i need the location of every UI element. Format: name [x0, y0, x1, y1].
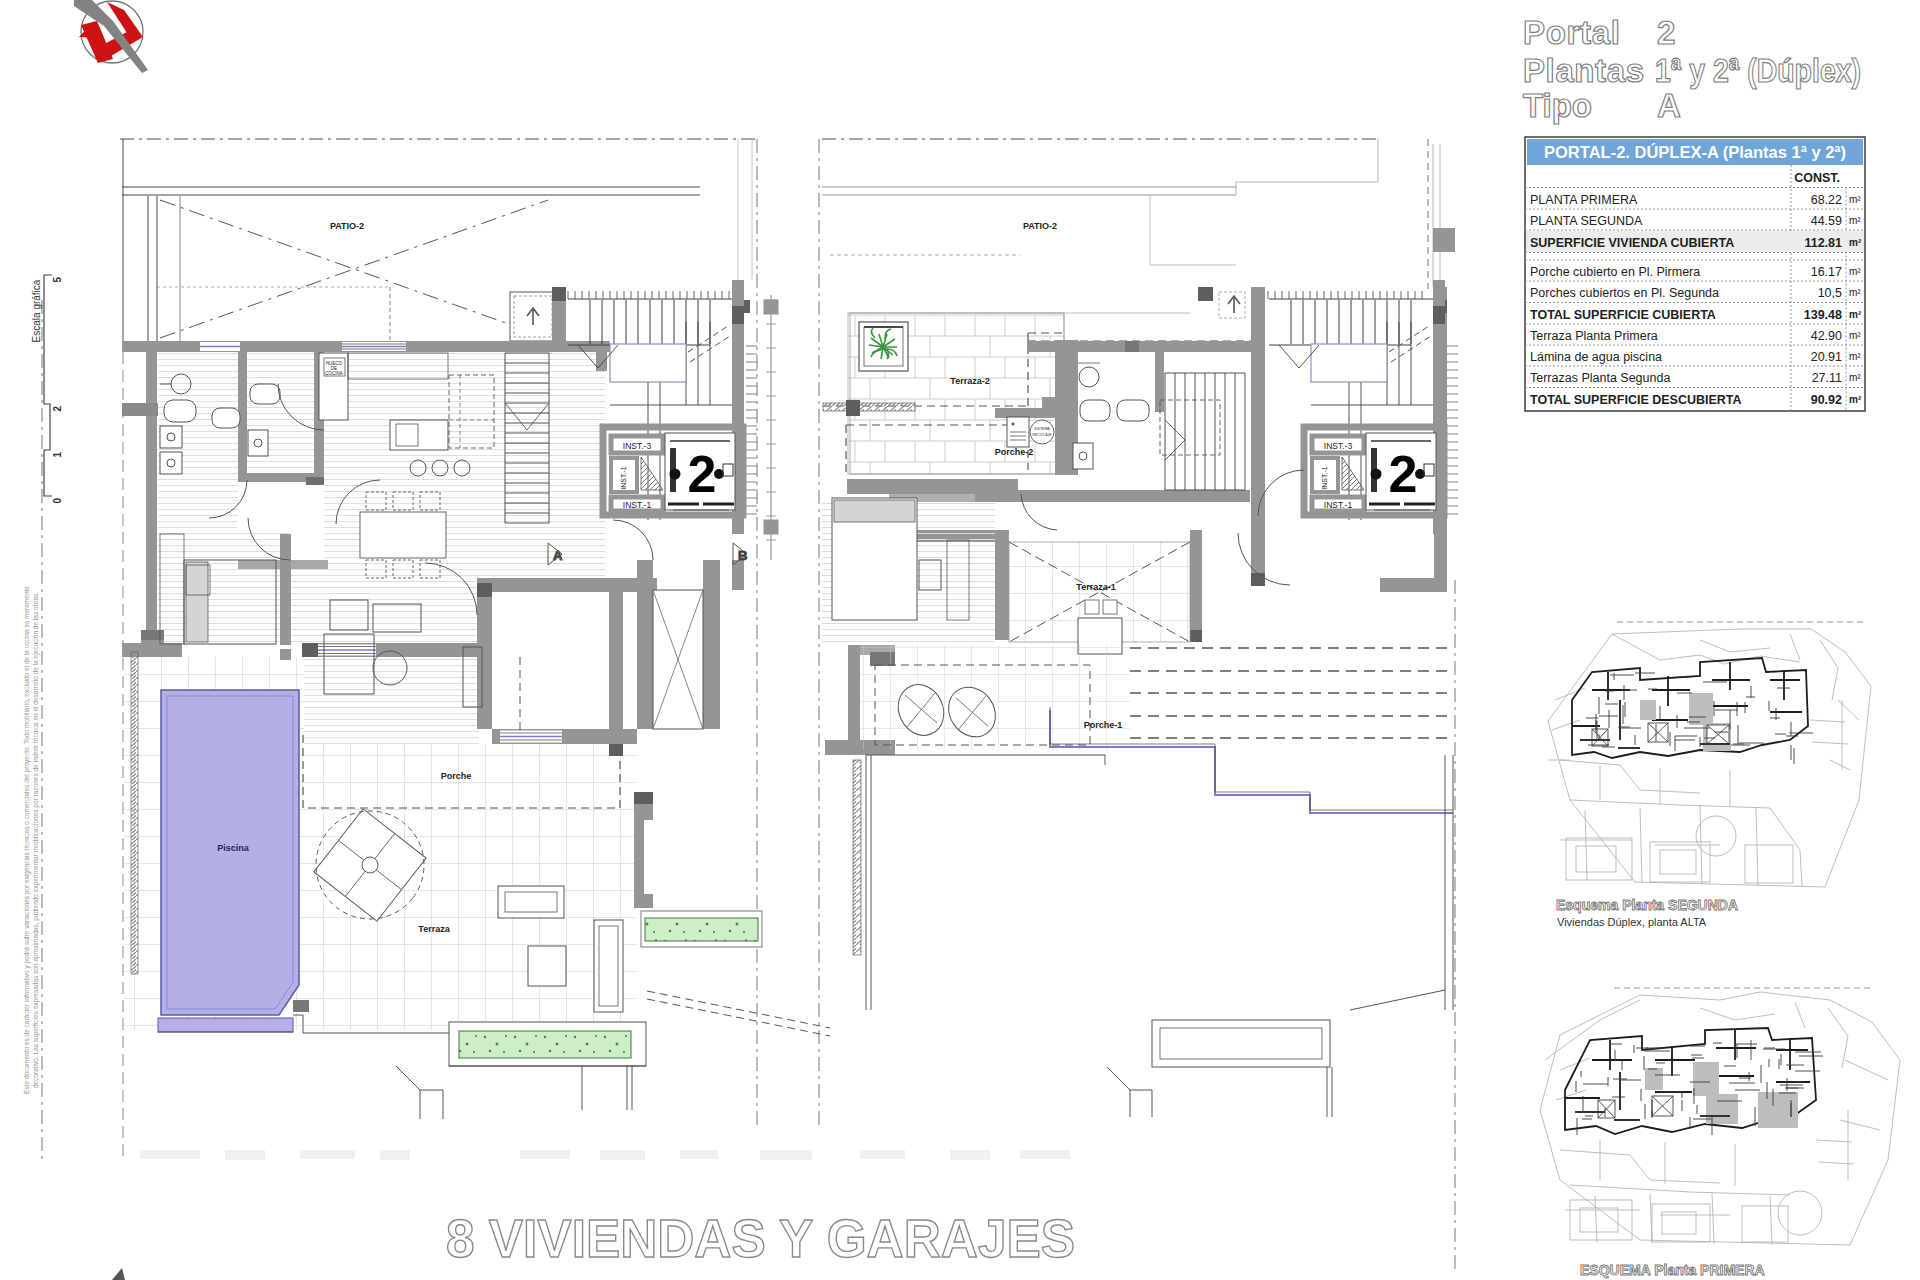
svg-text:m²: m² [1849, 372, 1861, 383]
svg-text:PLANTA SEGUNDA: PLANTA SEGUNDA [1530, 214, 1643, 228]
svg-text:90.92: 90.92 [1811, 393, 1842, 407]
svg-text:PATIO-2: PATIO-2 [1023, 221, 1057, 231]
svg-text:PLANTA PRIMERA: PLANTA PRIMERA [1530, 193, 1638, 207]
svg-text:COCINA: COCINA [325, 371, 343, 376]
svg-text:Terraza-2: Terraza-2 [950, 376, 989, 386]
svg-text:68.22: 68.22 [1811, 193, 1842, 207]
svg-text:PORTAL-2. DÚPLEX-A (Plantas 1ª: PORTAL-2. DÚPLEX-A (Plantas 1ª y 2ª) [1544, 143, 1846, 161]
svg-text:139.48: 139.48 [1804, 308, 1842, 322]
svg-text:0: 0 [52, 498, 63, 504]
svg-text:2: 2 [1657, 14, 1675, 51]
svg-text:Porche-2: Porche-2 [995, 447, 1034, 457]
svg-text:Porche: Porche [441, 771, 472, 781]
svg-text:Esquema Planta SEGUNDA: Esquema Planta SEGUNDA [1556, 897, 1738, 913]
svg-text:Portal: Portal [1523, 14, 1620, 51]
svg-text:A: A [1657, 87, 1681, 124]
svg-text:Este documento es de carácter: Este documento es de carácter informativ… [23, 586, 31, 1094]
svg-text:5: 5 [52, 277, 63, 283]
svg-text:Viviendas Dúplex, planta ALTA: Viviendas Dúplex, planta ALTA [1557, 916, 1707, 928]
svg-text:m²: m² [1849, 351, 1861, 362]
svg-text:PATIO-2: PATIO-2 [330, 221, 364, 231]
svg-text:10,5: 10,5 [1818, 286, 1842, 300]
svg-text:1ª y 2ª (Dúplex): 1ª y 2ª (Dúplex) [1655, 52, 1861, 89]
svg-text:SISTEMA: SISTEMA [1034, 427, 1050, 431]
svg-text:2: 2 [52, 406, 63, 412]
svg-text:ESQUEMA Planta PRIMERA: ESQUEMA Planta PRIMERA [1580, 1262, 1765, 1278]
svg-text:Terraza Planta Primera: Terraza Planta Primera [1530, 329, 1658, 343]
svg-text:m²: m² [1849, 287, 1861, 298]
svg-text:m²: m² [1849, 194, 1861, 205]
svg-text:42.90: 42.90 [1811, 329, 1842, 343]
svg-text:112.81: 112.81 [1804, 236, 1842, 250]
svg-text:Terrazas Planta Segunda: Terrazas Planta Segunda [1530, 371, 1670, 385]
svg-text:Porches cubiertos en Pl. Segun: Porches cubiertos en Pl. Segunda [1530, 286, 1719, 300]
svg-text:m²: m² [1849, 237, 1862, 248]
svg-text:TOTAL SUPERFICIE DESCUBIERTA: TOTAL SUPERFICIE DESCUBIERTA [1530, 393, 1742, 407]
svg-text:A: A [553, 548, 563, 563]
svg-text:m²: m² [1849, 394, 1862, 405]
svg-text:Lámina de agua piscina: Lámina de agua piscina [1530, 350, 1662, 364]
svg-text:m²: m² [1849, 330, 1861, 341]
svg-text:27.11: 27.11 [1812, 371, 1842, 385]
svg-text:16.17: 16.17 [1811, 265, 1842, 279]
svg-text:Terraza: Terraza [418, 924, 450, 934]
svg-text:B: B [738, 548, 747, 563]
svg-text:m²: m² [1849, 266, 1861, 277]
svg-text:Terraza-1: Terraza-1 [1076, 582, 1115, 592]
svg-text:Tipo: Tipo [1523, 87, 1592, 124]
svg-text:m²: m² [1849, 215, 1861, 226]
svg-text:Plantas: Plantas [1523, 52, 1644, 89]
svg-text:1: 1 [52, 452, 63, 458]
svg-text:Porche-1: Porche-1 [1084, 720, 1123, 730]
svg-text:20.91: 20.91 [1811, 350, 1842, 364]
svg-text:RECICLAJE: RECICLAJE [1032, 433, 1052, 437]
svg-text:TOTAL SUPERFICIE CUBIERTA: TOTAL SUPERFICIE CUBIERTA [1530, 308, 1716, 322]
svg-text:CONST.: CONST. [1794, 171, 1840, 185]
svg-text:Escala gráfica: Escala gráfica [31, 279, 42, 342]
svg-text:Porche cubierto en Pl. Pirmera: Porche cubierto en Pl. Pirmera [1530, 265, 1700, 279]
svg-text:44.59: 44.59 [1811, 214, 1842, 228]
svg-text:decorativo. Las superficies ex: decorativo. Las superficies expresadas s… [32, 592, 40, 1088]
svg-text:Piscina: Piscina [217, 843, 250, 853]
svg-text:m²: m² [1849, 309, 1862, 320]
svg-text:SUPERFICIE VIVIENDA CUBIERTA: SUPERFICIE VIVIENDA CUBIERTA [1530, 236, 1734, 250]
svg-text:8 VIVIENDAS Y GARAJES: 8 VIVIENDAS Y GARAJES [446, 1209, 1075, 1268]
